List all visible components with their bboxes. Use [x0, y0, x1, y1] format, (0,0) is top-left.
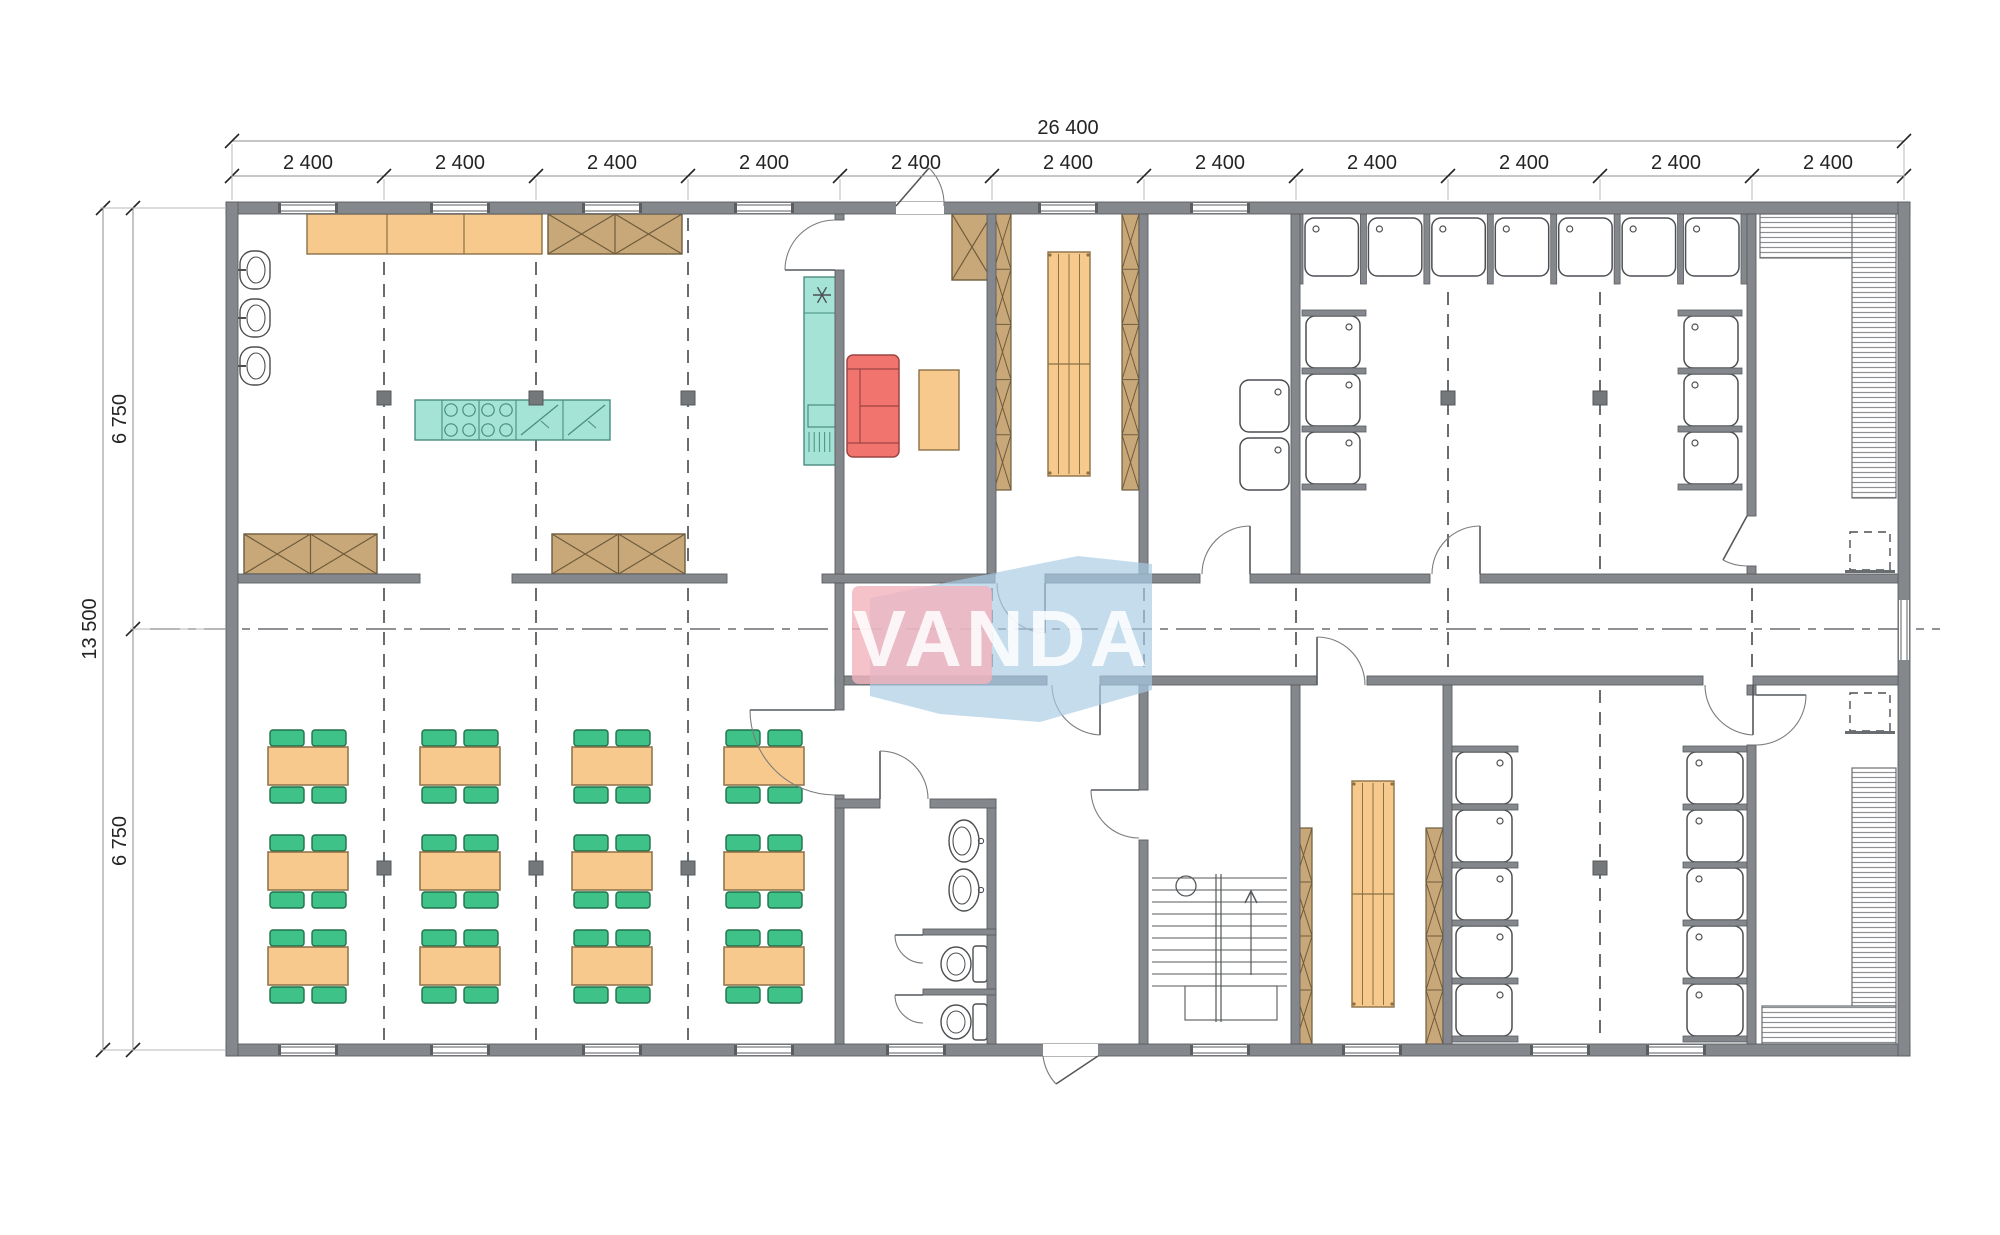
door-swing-arc: [1317, 637, 1365, 685]
wall: [1139, 214, 1148, 574]
drain: [1696, 934, 1702, 940]
wall: [835, 214, 844, 220]
bench-leg: [1086, 253, 1089, 256]
chair: [312, 930, 346, 946]
heater-base: [1845, 570, 1895, 573]
floor-plan-page: 26 4002 4002 4002 4002 4002 4002 4002 40…: [0, 0, 2000, 1235]
watermark-text: VANDA: [853, 594, 1152, 683]
dimension-label: 2 400: [1499, 152, 1549, 174]
column: [529, 391, 543, 405]
window-post: [1038, 203, 1041, 213]
dining-table: [420, 852, 500, 890]
window-post: [430, 203, 433, 213]
column: [681, 861, 695, 875]
door-swing-arc: [895, 995, 923, 1023]
wall: [987, 799, 996, 1044]
chair: [574, 835, 608, 851]
shower-stall: [1306, 316, 1360, 368]
dimension-label: 2 400: [435, 152, 485, 174]
chair: [574, 987, 608, 1003]
wall: [835, 583, 844, 710]
stall-divider: [1302, 310, 1366, 316]
dimension-label: 26 400: [1037, 117, 1098, 139]
dimension-label: 6 750: [109, 394, 131, 444]
stair-newel: [1176, 876, 1196, 896]
chair: [768, 835, 802, 851]
chair: [616, 787, 650, 803]
drain: [1497, 934, 1503, 940]
wall: [1139, 685, 1148, 790]
window-post: [886, 1045, 889, 1055]
chair: [768, 987, 802, 1003]
chair: [422, 987, 456, 1003]
dining-table: [572, 947, 652, 985]
drain: [1696, 818, 1702, 824]
chair: [726, 930, 760, 946]
stall-divider: [1678, 214, 1684, 284]
stall-divider: [1452, 862, 1518, 868]
bench-leg: [1352, 782, 1355, 785]
stall-divider: [1360, 214, 1366, 284]
door-swing-arc: [1723, 560, 1747, 566]
chair: [768, 892, 802, 908]
window-post: [791, 203, 794, 213]
wall: [1139, 840, 1148, 1044]
drain: [1567, 226, 1573, 232]
drain: [1503, 226, 1509, 232]
window-post: [943, 1045, 946, 1055]
window-post: [791, 1045, 794, 1055]
shower-stall: [1684, 316, 1738, 368]
stall-divider: [1452, 804, 1518, 810]
window-post: [487, 1045, 490, 1055]
chair: [270, 730, 304, 746]
dimension-label: 6 750: [109, 816, 131, 866]
staircase: [1152, 874, 1287, 1022]
chair: [616, 930, 650, 946]
drain: [1692, 324, 1698, 330]
dimension-label: 2 400: [283, 152, 333, 174]
door-swing-arc: [895, 935, 923, 963]
door-panel: [1056, 1056, 1098, 1084]
chair: [768, 730, 802, 746]
sauna-heater: [1850, 693, 1890, 731]
chair: [270, 987, 304, 1003]
window-post: [1587, 1045, 1590, 1055]
stall-divider: [1302, 368, 1366, 374]
stall-divider: [1678, 310, 1742, 316]
dining-table: [420, 747, 500, 785]
column: [1593, 391, 1607, 405]
heater-base: [1845, 731, 1895, 734]
chair: [616, 892, 650, 908]
window-post: [639, 1045, 642, 1055]
stall-divider: [1487, 214, 1493, 284]
shower-stall: [1432, 218, 1485, 276]
window-post: [734, 203, 737, 213]
stall-divider: [1302, 426, 1366, 432]
door-opening: [896, 202, 944, 214]
door-swing-arc: [1043, 1056, 1056, 1084]
chair: [312, 730, 346, 746]
column: [1593, 861, 1607, 875]
drain: [1694, 226, 1700, 232]
sauna-bench: [1852, 768, 1896, 1006]
window-post: [1342, 1045, 1345, 1055]
door-swing-arc: [785, 220, 835, 270]
toilet-bowl: [941, 1005, 971, 1039]
chair: [422, 930, 456, 946]
dining-table: [724, 747, 804, 785]
chair: [464, 930, 498, 946]
column: [1441, 391, 1455, 405]
kitchen-counter: [307, 214, 542, 254]
shower-stall: [1456, 810, 1512, 862]
window-post: [734, 1045, 737, 1055]
window-post: [430, 1045, 433, 1055]
chair: [464, 730, 498, 746]
chair: [312, 835, 346, 851]
stall-divider: [1452, 746, 1518, 752]
bench-leg: [1048, 471, 1051, 474]
wall: [1250, 574, 1430, 583]
shower-stall: [1368, 218, 1421, 276]
dining-table: [572, 852, 652, 890]
chair: [464, 787, 498, 803]
bench-leg: [1390, 1002, 1393, 1005]
drain: [1692, 440, 1698, 446]
bench-leg: [1390, 782, 1393, 785]
window-post: [1530, 1045, 1533, 1055]
wall: [987, 214, 996, 574]
window-post: [1190, 203, 1193, 213]
wall: [226, 202, 238, 1056]
dining-table: [572, 747, 652, 785]
stall-divider: [1683, 920, 1749, 926]
window-post: [1646, 1045, 1649, 1055]
shower-stall: [1686, 218, 1739, 276]
wall: [1747, 566, 1756, 574]
floor-plan-drawing: 26 4002 4002 4002 4002 4002 4002 4002 40…: [0, 0, 2000, 1235]
wall: [1753, 676, 1898, 685]
door-swing-arc: [1756, 695, 1806, 745]
wall: [1367, 676, 1703, 685]
dimension-label: 2 400: [587, 152, 637, 174]
chair: [768, 930, 802, 946]
chair: [422, 787, 456, 803]
drain: [1275, 389, 1281, 395]
wall: [1480, 574, 1898, 583]
dining-table: [268, 852, 348, 890]
drain: [1497, 818, 1503, 824]
sauna-heater: [1850, 532, 1890, 570]
dimension-label: 2 400: [891, 152, 941, 174]
stall-divider: [1551, 214, 1557, 284]
drain: [1313, 226, 1319, 232]
dining-table: [724, 852, 804, 890]
shower-stall: [1306, 374, 1360, 426]
stall-divider: [1452, 1036, 1518, 1042]
column: [377, 391, 391, 405]
shower-stall: [1240, 438, 1289, 490]
window-post: [582, 203, 585, 213]
drain: [1275, 447, 1281, 453]
chair: [422, 730, 456, 746]
dimension-label: 2 400: [1195, 152, 1245, 174]
door-swing-arc: [1705, 685, 1753, 735]
column: [377, 861, 391, 875]
drain: [1497, 876, 1503, 882]
drain: [1346, 324, 1352, 330]
bench-leg: [1048, 253, 1051, 256]
shower-stall: [1559, 218, 1612, 276]
chair: [768, 787, 802, 803]
shower-stall: [1456, 752, 1512, 804]
window-post: [278, 203, 281, 213]
shower-stall: [1456, 868, 1512, 920]
bench-leg: [1086, 471, 1089, 474]
chair: [464, 835, 498, 851]
drain: [1696, 992, 1702, 998]
wall: [1291, 685, 1300, 1044]
door-swing-arc: [880, 751, 928, 799]
dimension-label: 2 400: [1803, 152, 1853, 174]
shower-stall: [1687, 984, 1743, 1036]
chair: [726, 787, 760, 803]
chair: [574, 930, 608, 946]
column: [681, 391, 695, 405]
wall: [1443, 685, 1452, 1044]
shower-stall: [1687, 868, 1743, 920]
window-post: [582, 1045, 585, 1055]
shower-stall: [1687, 926, 1743, 978]
chair: [726, 892, 760, 908]
stall-divider: [1452, 978, 1518, 984]
chair: [312, 892, 346, 908]
window-post: [639, 203, 642, 213]
door-swing-arc: [1432, 526, 1480, 574]
shower-stall: [1456, 926, 1512, 978]
drain: [1497, 760, 1503, 766]
chair: [422, 892, 456, 908]
stall-divider: [1302, 484, 1366, 490]
shower-stall: [1305, 218, 1358, 276]
stall-divider: [1683, 978, 1749, 984]
dining-table: [268, 947, 348, 985]
dimension-label: 13 500: [79, 598, 101, 659]
stall-divider: [1678, 484, 1742, 490]
chair: [574, 730, 608, 746]
window-post: [1247, 203, 1250, 213]
sauna-bench: [1852, 214, 1896, 498]
shower-stall: [1684, 432, 1738, 484]
stall-divider: [1683, 746, 1749, 752]
dining-table: [724, 947, 804, 985]
shower-stall: [1456, 984, 1512, 1036]
dimension-label: 2 400: [739, 152, 789, 174]
door-panel: [1723, 516, 1747, 560]
stall-divider: [1683, 862, 1749, 868]
window-post: [487, 203, 490, 213]
wall: [930, 799, 996, 808]
drain: [1440, 226, 1446, 232]
chair: [312, 787, 346, 803]
chair: [574, 787, 608, 803]
dimension-label: 2 400: [1651, 152, 1701, 174]
chair: [574, 892, 608, 908]
chair: [270, 787, 304, 803]
shower-stall: [1687, 810, 1743, 862]
shower-stall: [1684, 374, 1738, 426]
drain: [1346, 382, 1352, 388]
window-post: [278, 1045, 281, 1055]
chair: [616, 730, 650, 746]
chair: [726, 987, 760, 1003]
drain: [1696, 760, 1702, 766]
stall-divider: [1683, 804, 1749, 810]
door-swing-arc: [1202, 526, 1250, 574]
drain: [1630, 226, 1636, 232]
shower-stall: [1687, 752, 1743, 804]
table: [919, 370, 959, 450]
wall: [835, 799, 880, 808]
chair: [464, 892, 498, 908]
chair: [270, 930, 304, 946]
shower-stall: [1240, 380, 1289, 432]
chair: [312, 987, 346, 1003]
chair: [616, 835, 650, 851]
drain: [1497, 992, 1503, 998]
shower-stall: [1495, 218, 1548, 276]
chair: [726, 835, 760, 851]
wall: [238, 574, 420, 583]
chair: [270, 892, 304, 908]
dining-table: [268, 747, 348, 785]
wall: [835, 795, 844, 1044]
chair: [270, 835, 304, 851]
toilet-tank: [973, 946, 987, 982]
dimension-label: 2 400: [1043, 152, 1093, 174]
door-opening: [1043, 1044, 1098, 1056]
wall: [1747, 214, 1756, 516]
drain: [1346, 440, 1352, 446]
chair: [616, 987, 650, 1003]
sauna-bench: [1762, 1006, 1896, 1044]
wall: [512, 574, 727, 583]
stall-divider: [1452, 920, 1518, 926]
stair-landing: [1185, 986, 1277, 1020]
wall: [923, 929, 996, 935]
chair: [422, 835, 456, 851]
wall: [1747, 685, 1756, 695]
shower-stall: [1622, 218, 1675, 276]
window-post: [1190, 1045, 1193, 1055]
kitchen-island: [415, 400, 610, 440]
stall-divider: [1678, 368, 1742, 374]
window-post: [1095, 203, 1098, 213]
window-post: [1399, 1045, 1402, 1055]
window-post: [335, 203, 338, 213]
wall: [835, 270, 844, 574]
drain: [1376, 226, 1382, 232]
drain: [1692, 382, 1698, 388]
column: [529, 861, 543, 875]
wall: [1747, 745, 1756, 1044]
window-post: [1703, 1045, 1706, 1055]
toilet-bowl: [941, 947, 971, 981]
drain: [1696, 876, 1702, 882]
shower-stall: [1306, 432, 1360, 484]
window-post: [335, 1045, 338, 1055]
door-swing-arc: [1091, 790, 1139, 838]
window-post: [1247, 1045, 1250, 1055]
chair: [464, 987, 498, 1003]
stall-divider: [1424, 214, 1430, 284]
wall: [923, 989, 996, 995]
stall-divider: [1683, 1036, 1749, 1042]
dining-table: [420, 947, 500, 985]
dimension-label: 2 400: [1347, 152, 1397, 174]
stall-divider: [1614, 214, 1620, 284]
bench-leg: [1352, 1002, 1355, 1005]
stall-divider: [1678, 426, 1742, 432]
stall-divider: [1741, 214, 1747, 284]
toilet-tank: [973, 1004, 987, 1040]
wall: [1291, 214, 1300, 574]
